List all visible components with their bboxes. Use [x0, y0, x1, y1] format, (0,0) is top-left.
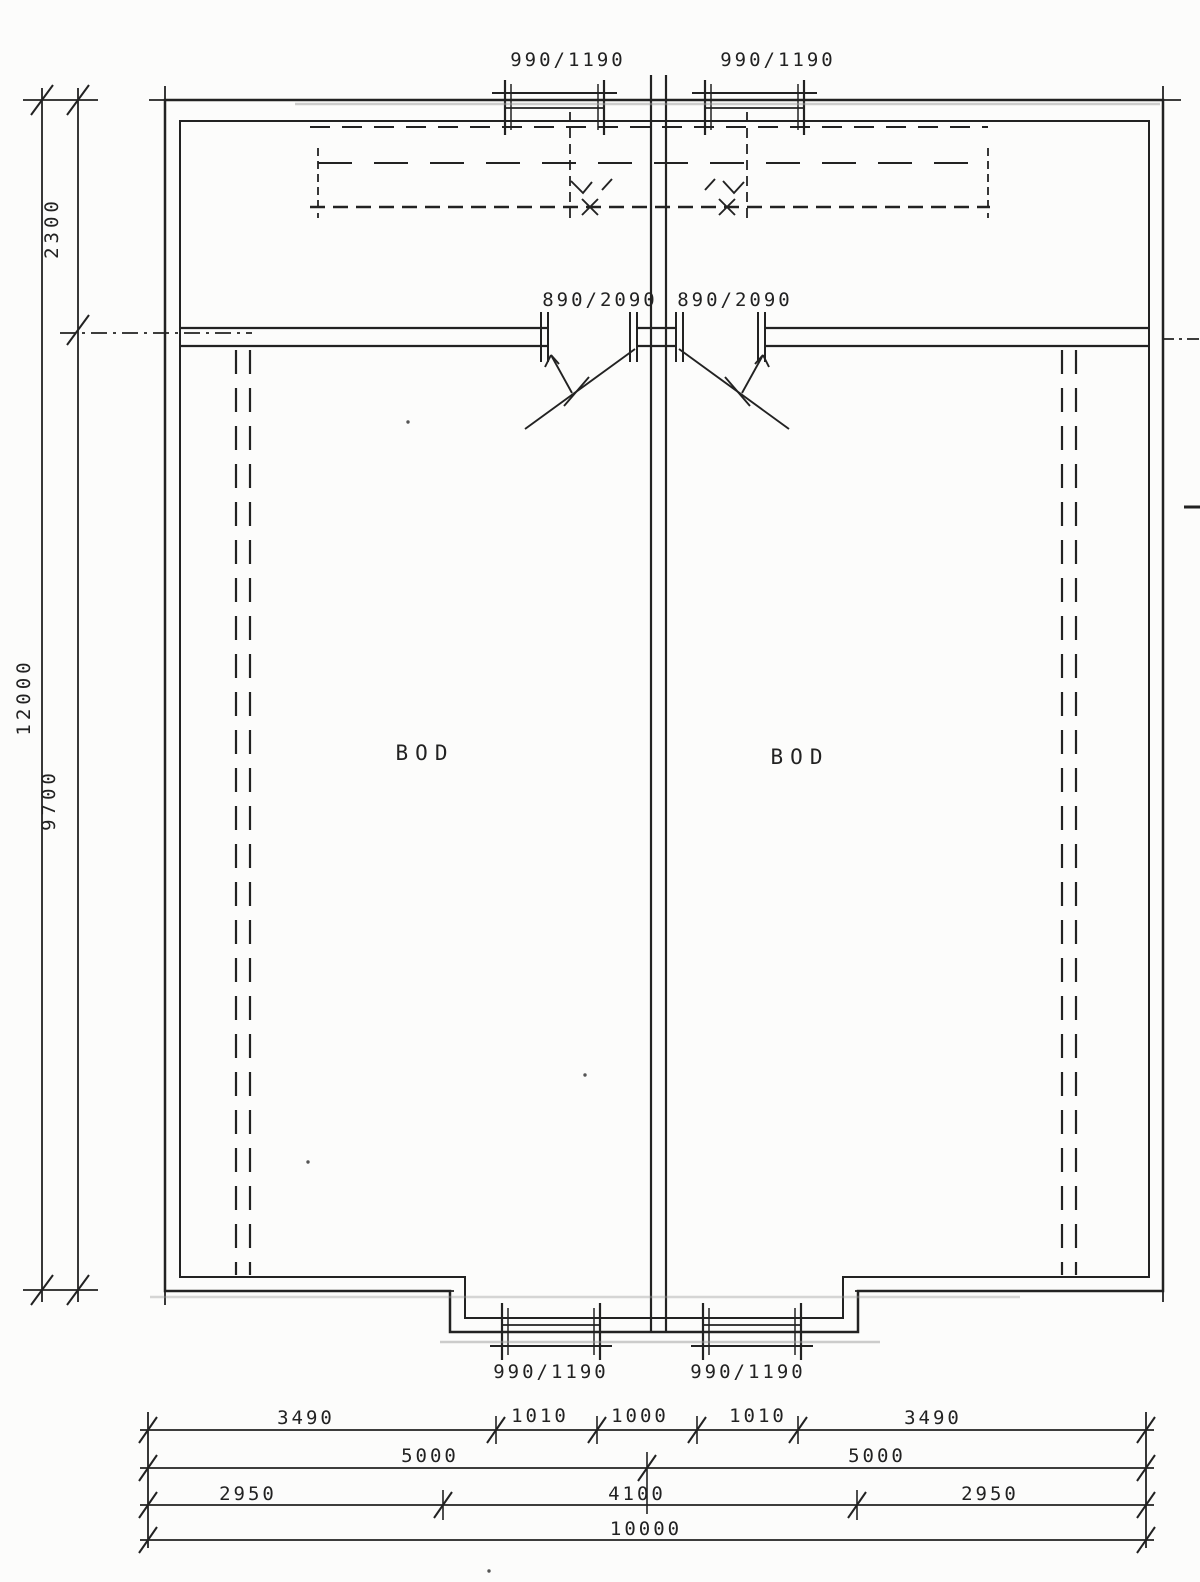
dim-row4-1: 10000 [610, 1518, 682, 1540]
dim-row1-5: 3490 [904, 1407, 962, 1429]
dim-row1-1: 3490 [277, 1407, 335, 1429]
dim-row1-2: 1010 [511, 1405, 569, 1427]
floor-plan-drawing: 990/1190 990/1190 890/2090 890/2090 BOD … [0, 0, 1200, 1582]
door-swing-right [679, 349, 789, 429]
window-dim-top-right: 990/1190 [720, 49, 836, 71]
window-dim-bottom-left: 990/1190 [493, 1361, 609, 1383]
dim-row1-3: 1000 [611, 1405, 669, 1427]
window-dim-top-left: 990/1190 [510, 49, 626, 71]
room-label-right: BOD [771, 745, 830, 769]
dim-row2-1: 5000 [401, 1445, 459, 1467]
center-partition-wall [651, 75, 666, 1332]
dim-left-upper: 2300 [41, 197, 63, 259]
dim-left-overall: 12000 [13, 658, 35, 735]
room-label-left: BOD [396, 741, 455, 765]
window-dim-bottom-right: 990/1190 [690, 1361, 806, 1383]
dim-row2-2: 5000 [848, 1445, 906, 1467]
dim-row3-3: 2950 [961, 1483, 1019, 1505]
door-dim-right: 890/2090 [677, 289, 793, 311]
dim-row3-1: 2950 [219, 1483, 277, 1505]
door-dim-left: 890/2090 [542, 289, 658, 311]
interior-cross-wall [180, 328, 1149, 346]
dim-row3-2: 4100 [608, 1483, 666, 1505]
inner-wall-outline [180, 121, 1149, 1318]
floor-plan-sheet: 990/1190 990/1190 890/2090 890/2090 BOD … [0, 0, 1200, 1582]
door-jambs [541, 312, 765, 362]
loft-arrow-left-icon [571, 179, 612, 215]
dim-row1-4: 1010 [729, 1405, 787, 1427]
loft-arrow-right-icon [705, 179, 744, 215]
room-dashed-lines [236, 350, 1076, 1275]
dim-left-lower: 9700 [38, 769, 60, 831]
